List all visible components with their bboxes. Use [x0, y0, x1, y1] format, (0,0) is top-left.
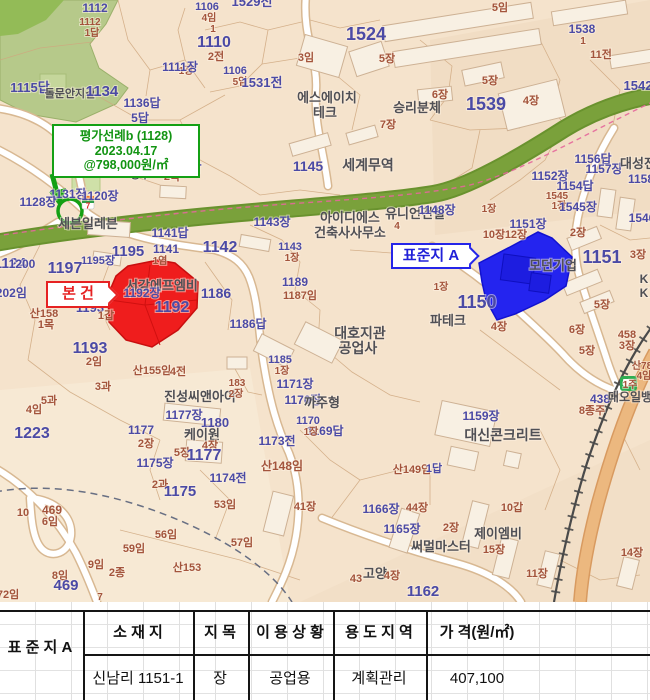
map-label: 1170	[296, 415, 320, 427]
map-label: 4임	[637, 369, 650, 382]
subject-callout: 본 건	[46, 281, 110, 308]
map-label: 43	[350, 573, 362, 585]
map-label: 1187임	[283, 289, 317, 302]
map-label: 대호지관	[334, 325, 386, 341]
cell-price: 407,100	[450, 668, 504, 690]
table-top-border	[0, 610, 650, 612]
precedent-price: @798,000원/㎡	[56, 158, 196, 173]
map-label: 1177	[187, 447, 222, 464]
map-label: 1145	[293, 158, 324, 174]
map-label: 아이디에스	[320, 210, 380, 225]
map-label: 2장	[229, 387, 245, 400]
map-label: 5장	[579, 343, 595, 357]
cell-address: 신남리 1151-1	[92, 668, 183, 690]
map-label: 까주형	[304, 395, 340, 410]
map-label: 2임	[86, 355, 102, 368]
map-label: 1177장	[165, 408, 202, 422]
map-label: 1장	[285, 251, 301, 264]
map-label: 7장	[380, 117, 396, 131]
map-label: 산158	[30, 306, 58, 320]
map-label: 1151	[582, 247, 621, 267]
table-vline	[193, 610, 195, 700]
map-label: 1175장	[136, 456, 173, 470]
table-vline	[426, 610, 428, 700]
map-label: 7	[97, 592, 103, 602]
map-label: 41장	[294, 499, 316, 513]
table-vline	[248, 610, 250, 700]
appraisal-precedent-note: 평가선례b (1128) 2023.04.17 @798,000원/㎡	[52, 124, 200, 178]
map-label: 6임	[42, 515, 58, 528]
map-label: 59임	[123, 542, 145, 555]
precedent-title: 평가선례b (1128)	[56, 129, 196, 144]
map-label: 1장	[304, 425, 320, 438]
map-label: 에스에이치	[297, 90, 357, 105]
map-label: 53임	[214, 498, 236, 511]
map-label: 1529전	[232, 0, 273, 9]
map-label: 3과	[95, 379, 111, 393]
map-label: 1162	[407, 583, 440, 600]
map-label: 1110	[197, 34, 231, 51]
map-label: 써멀마스터	[411, 539, 471, 554]
map-label: 세븐일레븐	[58, 216, 118, 231]
map-label: K	[640, 286, 649, 300]
map-label: 10장	[483, 227, 505, 241]
map-label: 대오일뱅	[608, 389, 650, 404]
map-label: 1173전	[258, 433, 295, 448]
table-row-divider	[83, 654, 650, 656]
map-label: 1175	[164, 483, 197, 500]
map-label: 11장	[526, 566, 548, 580]
map-label: 15장	[483, 542, 505, 556]
map-label: 1143	[278, 241, 302, 253]
map-label: 1192	[155, 299, 190, 316]
map-label: 파테크	[430, 313, 466, 328]
map-label: 1120장	[81, 189, 118, 203]
map-label: 1165장	[383, 522, 420, 536]
standard-callout-label: 표준지 A	[403, 247, 459, 264]
map-label: 1223	[14, 425, 50, 442]
map-label: 4장	[491, 319, 507, 333]
map-label: K	[640, 272, 649, 286]
map-label: 469	[53, 577, 78, 594]
map-label: 1답	[426, 461, 442, 475]
map-label: 4임	[202, 11, 217, 24]
map-label: 10	[17, 507, 29, 519]
map-label: 1142	[203, 239, 238, 256]
map-label: 10갑	[501, 501, 523, 514]
map-label: 1134	[86, 83, 119, 100]
map-label: 1185	[268, 354, 292, 366]
map-label: 12장	[505, 227, 527, 241]
map-label: 44장	[406, 500, 428, 514]
map-label: 3장	[619, 338, 635, 352]
map-label: 1538	[569, 22, 596, 36]
map-label: 모던기업	[529, 258, 577, 273]
map-label: 1193	[73, 340, 108, 357]
col-header-zoning: 용 도 지 역	[345, 622, 413, 644]
map-label: 4전	[170, 364, 186, 378]
map-label: 1177	[128, 423, 154, 437]
map-label: 2장	[570, 225, 586, 239]
table-vline	[333, 610, 335, 700]
map-label: 9임	[88, 558, 104, 571]
map-label: 테크	[313, 105, 337, 120]
map-label: 1염	[153, 255, 168, 267]
map-label: 1111장	[162, 60, 198, 74]
map-label: 11전	[590, 47, 612, 61]
map-label: 8종주	[579, 404, 605, 417]
map-canvas[interactable]: 7 1115답5답11162목1124돌문안지길1134111211121답11…	[0, 0, 650, 602]
map-label: 4장	[384, 568, 400, 582]
map-label: 산155임	[133, 363, 172, 377]
map-label: 진성씨앤아이	[164, 389, 236, 404]
map-label: 제이엠비	[474, 526, 522, 541]
map-label: 1200	[9, 257, 36, 271]
table-vline	[83, 610, 85, 700]
map-label: 1갑	[98, 309, 114, 322]
map-label: 1143장	[253, 215, 290, 229]
map-label: 1답	[85, 27, 101, 39]
map-label: 1186답	[229, 316, 266, 331]
map-label: 1장	[434, 280, 450, 293]
map-label: 1목	[38, 318, 54, 331]
map-label: 1128장	[19, 195, 56, 209]
cell-land-category: 장	[213, 668, 227, 690]
map-label: 1148장	[418, 203, 455, 217]
map-label: 1542	[624, 78, 650, 93]
map-label: 세계무역	[342, 157, 394, 173]
map-label: 5장	[594, 297, 610, 311]
col-header-land-category: 지 목	[204, 622, 236, 644]
map-label: 산148임	[261, 458, 303, 473]
map-label: 2장	[138, 436, 154, 450]
map-label: 1106	[195, 1, 219, 13]
map-label: 1531전	[242, 75, 283, 90]
map-label: 1158	[628, 172, 650, 186]
row-header-standard-a: 표 준 지 A	[8, 637, 73, 659]
map-label: 4임	[26, 403, 42, 416]
map-label: 대성전	[620, 156, 650, 171]
map-label: 1189	[282, 275, 308, 289]
map-label: 3장	[630, 247, 646, 261]
map-label: 대신콘크리트	[464, 427, 541, 443]
map-label: 1141답	[151, 225, 188, 240]
map-label: 1157장	[585, 162, 622, 176]
col-header-price: 가 격(원/㎡)	[440, 622, 515, 644]
map-label: 승리분체	[393, 100, 441, 115]
precedent-date: 2023.04.17	[56, 144, 196, 159]
map-label: 1159장	[462, 409, 499, 423]
map-label: 1112	[79, 17, 101, 28]
standard-lot-callout: 표준지 A	[391, 243, 471, 269]
cell-use-situation: 공업용	[269, 668, 310, 690]
map-label: 14장	[621, 545, 643, 559]
map-label: 1166장	[362, 502, 399, 516]
map-label: 1150	[457, 292, 496, 312]
map-label: 4	[394, 221, 400, 232]
map-label: 1	[580, 36, 586, 47]
appraisal-map-report: 7 1115답5답11162목1124돌문안지길1134111211121답11…	[0, 0, 650, 700]
map-label: 5답	[131, 110, 149, 125]
map-label: 1186	[201, 285, 232, 301]
map-label: 1192장	[123, 286, 160, 300]
cell-zoning: 계획관리	[351, 668, 406, 690]
map-label: 1136답	[123, 95, 160, 110]
map-label: 공업사	[339, 340, 378, 356]
map-label: 1174전	[209, 470, 246, 485]
map-label: 1195장	[81, 253, 115, 267]
map-label: 183	[229, 378, 246, 389]
map-label: 5과	[41, 393, 57, 407]
map-label: 1546	[629, 211, 650, 225]
map-label: 2전	[208, 49, 224, 63]
subject-callout-label: 본 건	[62, 285, 94, 302]
map-label: 1141	[153, 242, 179, 256]
map-label: 1195	[112, 243, 145, 260]
map-label: 1171장	[276, 377, 313, 391]
map-label: 2종	[109, 566, 125, 579]
map-label: 1197	[48, 260, 83, 277]
map-label: 56임	[155, 528, 177, 541]
map-label: 1202임	[0, 286, 27, 300]
standard-lot-table: 표 준 지 A 소 재 지 지 목 이 용 상 황 용 도 지 역 가 격(원/…	[0, 602, 650, 700]
map-label: 72임	[0, 588, 19, 601]
col-header-use-situation: 이 용 상 황	[256, 622, 324, 644]
map-label: 1112	[82, 1, 108, 15]
map-label: 1545장	[559, 200, 597, 214]
map-label: 5장	[482, 73, 498, 87]
map-label: 4장	[523, 93, 539, 107]
map-label: 57임	[231, 536, 253, 549]
map-label: 2장	[443, 520, 459, 534]
map-label: 1539	[466, 94, 506, 114]
map-label: 산153	[173, 560, 201, 574]
map-label: 6장	[432, 87, 448, 101]
map-label: 5장	[379, 51, 395, 65]
map-label: 6장	[569, 322, 585, 336]
map-label: 건축사사무소	[314, 225, 386, 240]
map-label: 469	[42, 503, 62, 517]
map-label: 1524	[346, 24, 386, 44]
map-label: 1장	[275, 364, 291, 377]
col-header-address: 소 재 지	[113, 622, 163, 644]
map-label: 3임	[298, 51, 314, 64]
map-label: 1장	[482, 202, 498, 215]
map-label: 5임	[492, 1, 508, 14]
